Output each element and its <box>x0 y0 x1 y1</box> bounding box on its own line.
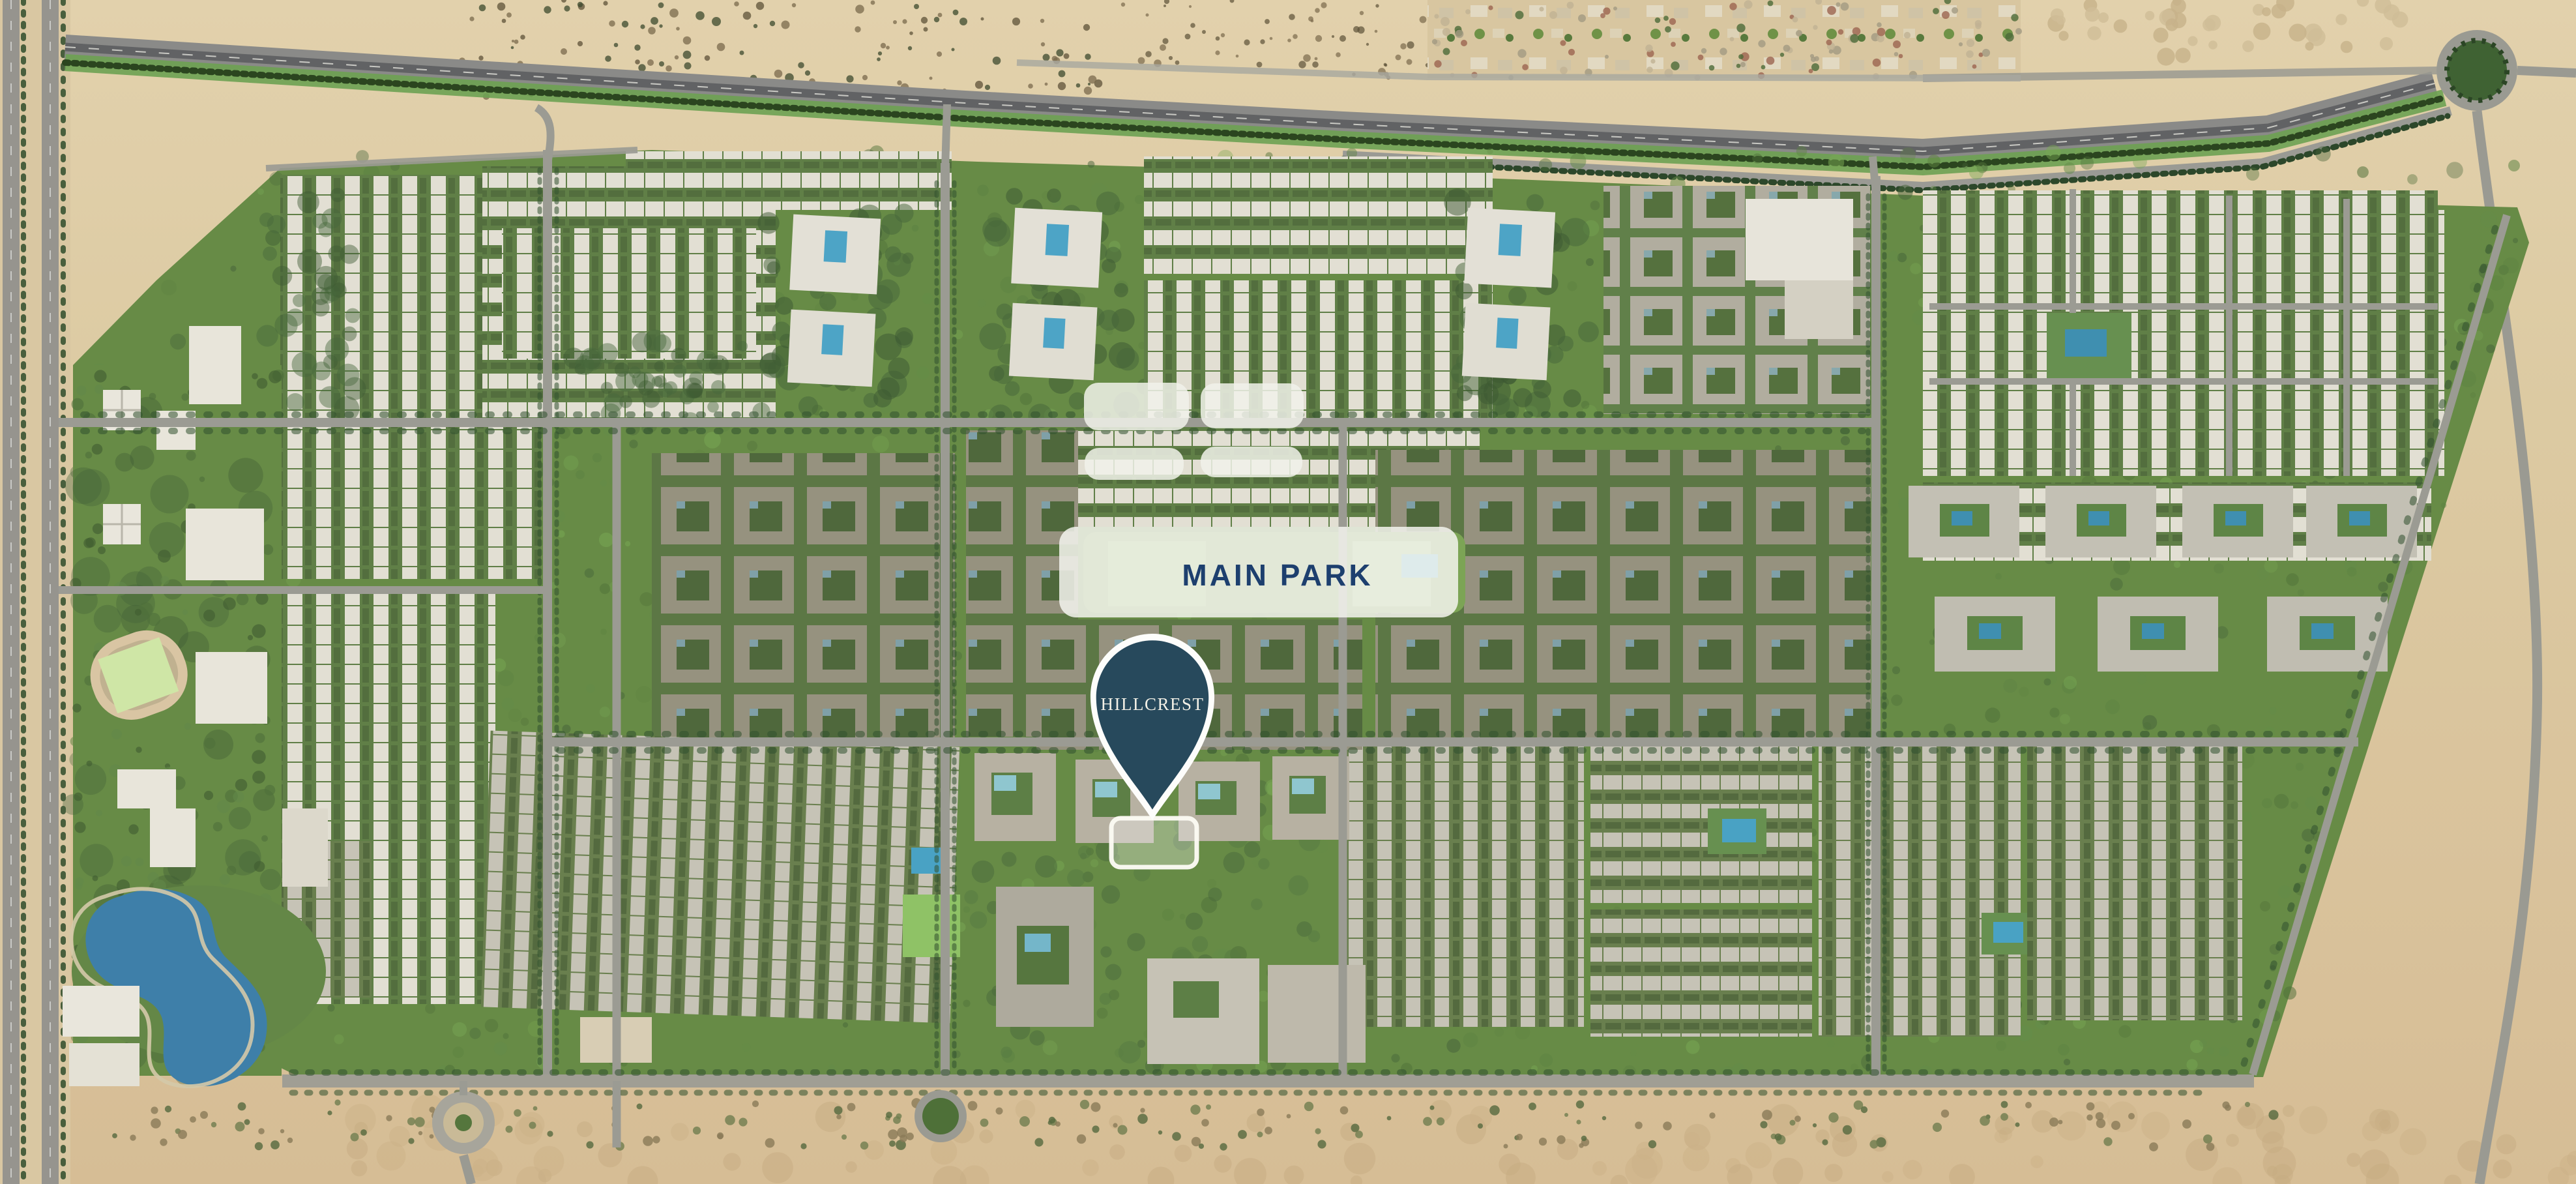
svg-text:HILLCREST: HILLCREST <box>1101 694 1205 714</box>
svg-text:MAIN PARK: MAIN PARK <box>1182 558 1373 592</box>
